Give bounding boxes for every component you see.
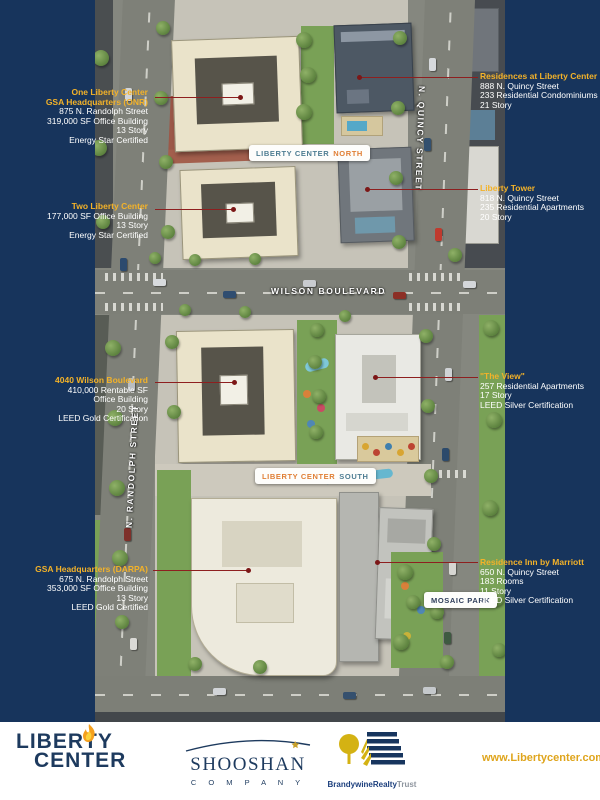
lawn-gsa-west xyxy=(157,470,191,676)
callout-two-liberty-center: Two Liberty Center 177,000 SF Office Bui… xyxy=(0,202,148,240)
banner-text-main: LIBERTY CENTER xyxy=(256,149,329,158)
tree xyxy=(105,340,121,356)
tree xyxy=(392,235,406,249)
callout-dot xyxy=(231,207,236,212)
callout-liberty-tower: Liberty Tower 818 N. Quincy Street 235 R… xyxy=(480,184,600,222)
tree xyxy=(249,253,261,265)
building-liberty-tower xyxy=(337,147,414,244)
tree xyxy=(149,252,161,264)
car xyxy=(444,632,451,644)
callout-the-view: "The View" 257 Residential Apartments 17… xyxy=(480,372,600,410)
liberty-center-site-plan-poster: LIBERTY CENTERNORTH LIBERTY CENTERSOUTH … xyxy=(0,0,600,800)
callout-dot xyxy=(373,375,378,380)
tree xyxy=(159,155,173,169)
callout-line xyxy=(368,189,478,190)
crosswalk xyxy=(409,273,465,281)
tree xyxy=(300,67,316,83)
car xyxy=(423,687,436,694)
building-4040-wilson-boulevard xyxy=(176,329,296,463)
banner-liberty-center-north: LIBERTY CENTERNORTH xyxy=(249,145,370,161)
banner-liberty-center-south: LIBERTY CENTERSOUTH xyxy=(255,468,376,484)
tree xyxy=(296,104,312,120)
tree xyxy=(309,425,323,439)
callout-line-text: LEED Silver Certification xyxy=(480,401,600,411)
tree xyxy=(424,469,438,483)
shooshan-company-word: C O M P A N Y xyxy=(178,778,318,787)
callout-4040-wilson-boulevard: 4040 Wilson Boulevard 410,000 Rentable S… xyxy=(0,376,148,424)
callout-line-text: Energy Star Certified xyxy=(0,231,148,241)
tree xyxy=(393,31,407,45)
tree xyxy=(167,405,181,419)
street-bottom xyxy=(95,676,505,712)
callout-residence-inn-by-marriott: Residence Inn by Marriott 650 N. Quincy … xyxy=(480,558,600,606)
car xyxy=(120,258,127,271)
building-gsa-headquarters-darpa xyxy=(191,498,337,676)
callout-dot xyxy=(357,75,362,80)
tree xyxy=(427,537,441,551)
tree xyxy=(253,660,267,674)
shooshan-company-logo: SHOOSHAN C O M P A N Y xyxy=(178,736,318,787)
crosswalk xyxy=(105,303,163,311)
aerial-site-map: LIBERTY CENTERNORTH LIBERTY CENTERSOUTH … xyxy=(95,0,505,722)
building-two-liberty-center xyxy=(179,166,298,260)
crosswalk xyxy=(409,303,465,311)
car xyxy=(130,638,137,650)
tree xyxy=(421,399,435,413)
tree xyxy=(339,310,351,322)
callout-gsa-headquarters-darpa: GSA Headquarters (DARPA) 675 N. Randolph… xyxy=(0,565,148,613)
callout-dot xyxy=(238,95,243,100)
tree xyxy=(312,389,326,403)
liberty-center-logo: LIBERTY CENTER xyxy=(16,732,134,770)
callout-residences-at-liberty-center: Residences at Liberty Center 888 N. Quin… xyxy=(480,72,600,110)
tree xyxy=(419,329,433,343)
callout-line-text: 20 Story xyxy=(480,213,600,223)
tree xyxy=(308,355,322,369)
footer: LIBERTY CENTER SHOOSHAN C O M P A N Y xyxy=(0,722,600,800)
tree xyxy=(482,500,498,516)
tree xyxy=(483,320,499,336)
tree xyxy=(109,480,125,496)
car xyxy=(213,688,226,695)
banner-text-accent: SOUTH xyxy=(339,472,368,481)
tree xyxy=(239,306,251,318)
green-east-edge xyxy=(479,315,505,680)
car xyxy=(445,368,452,381)
callout-line-text: LEED Silver Certification xyxy=(480,596,600,606)
banner-text-accent: NORTH xyxy=(333,149,363,158)
callout-one-liberty-center: One Liberty Center GSA Headquarters (ONR… xyxy=(0,88,148,146)
tree xyxy=(391,101,405,115)
tree xyxy=(165,335,179,349)
logo-line-center: CENTER xyxy=(16,751,134,770)
tree xyxy=(448,248,462,262)
tree xyxy=(440,655,454,669)
callout-line-text: LEED Gold Certification xyxy=(0,414,148,424)
tree xyxy=(156,21,170,35)
tree xyxy=(189,254,201,266)
tree xyxy=(406,595,420,609)
car xyxy=(223,291,236,298)
brandywine-name: BrandywineRealtyTrust xyxy=(322,780,422,789)
car xyxy=(153,279,166,286)
car xyxy=(442,448,449,461)
tree xyxy=(397,564,413,580)
callout-line-text: Energy Star Certified xyxy=(0,136,148,146)
car xyxy=(124,528,131,541)
car xyxy=(463,281,476,288)
brandywine-realty-trust-logo: BrandywineRealtyTrust xyxy=(322,730,422,789)
tree xyxy=(188,657,202,671)
pool-deck-the-view xyxy=(357,436,419,462)
tree xyxy=(492,643,505,657)
tree xyxy=(389,171,403,185)
car xyxy=(393,292,406,299)
callout-dot xyxy=(365,187,370,192)
pool-deck-residences xyxy=(341,116,383,136)
car xyxy=(343,692,356,699)
tree xyxy=(310,323,324,337)
arc-star-icon xyxy=(180,736,316,752)
building-one-liberty-center xyxy=(171,36,303,152)
torch-flame-icon xyxy=(80,723,98,745)
tree-building-icon xyxy=(337,730,407,774)
callout-line xyxy=(378,562,478,563)
callout-line xyxy=(155,97,241,98)
car xyxy=(429,58,436,71)
banner-text-main: LIBERTY CENTER xyxy=(262,472,335,481)
car xyxy=(435,228,442,241)
callout-line xyxy=(155,209,234,210)
callout-line xyxy=(155,382,235,383)
block-bottom-edge xyxy=(95,712,505,722)
callout-line xyxy=(376,377,478,378)
tree xyxy=(296,32,312,48)
callout-dot xyxy=(246,568,251,573)
tree xyxy=(115,615,129,629)
website-url-link[interactable]: www.Libertycenter.com xyxy=(482,752,600,764)
callout-line xyxy=(360,77,478,78)
callout-line-text: LEED Gold Certified xyxy=(0,603,148,613)
callout-dot xyxy=(375,560,380,565)
callout-dot xyxy=(232,380,237,385)
tree xyxy=(393,634,409,650)
tree xyxy=(154,91,168,105)
building-residence-inn-west-wing xyxy=(339,492,379,662)
callout-line xyxy=(153,570,249,571)
shooshan-name: SHOOSHAN xyxy=(178,754,318,776)
tree xyxy=(179,304,191,316)
street-label-wilson-boulevard: WILSON BOULEVARD xyxy=(271,286,386,296)
callout-line-text: 21 Story xyxy=(480,101,600,111)
car xyxy=(449,562,456,575)
tree xyxy=(161,225,175,239)
tree xyxy=(486,412,502,428)
